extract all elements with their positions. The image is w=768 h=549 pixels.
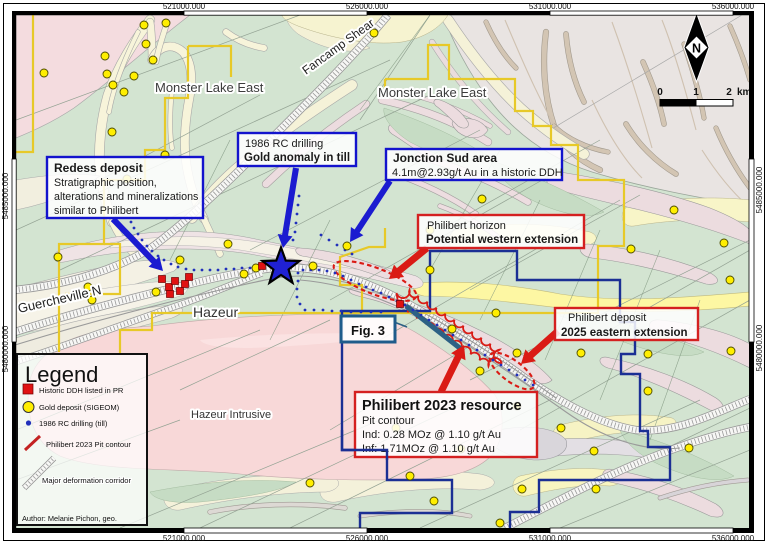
svg-text:Monster Lake East: Monster Lake East <box>155 80 264 95</box>
svg-text:5485000.000: 5485000.000 <box>1 172 10 219</box>
svg-text:526000.000: 526000.000 <box>346 534 389 543</box>
svg-text:531000.000: 531000.000 <box>529 2 572 11</box>
svg-text:526000.000: 526000.000 <box>346 2 389 11</box>
svg-text:536000.000: 536000.000 <box>712 2 755 11</box>
svg-text:521000.000: 521000.000 <box>163 2 206 11</box>
svg-text:Philibert horizon: Philibert horizon <box>427 220 506 232</box>
svg-text:0: 0 <box>657 87 663 98</box>
svg-text:Hazeur Intrusive: Hazeur Intrusive <box>191 409 271 421</box>
svg-text:Jonction Sud area: Jonction Sud area <box>393 151 497 165</box>
svg-text:5480000.000: 5480000.000 <box>755 324 764 371</box>
svg-text:Potential western extension: Potential western extension <box>426 234 578 246</box>
svg-text:531000.000: 531000.000 <box>529 534 572 543</box>
svg-text:Historic DDH listed in PR: Historic DDH listed in PR <box>39 386 124 395</box>
svg-text:Author: Melanie Pichon, geo.: Author: Melanie Pichon, geo. <box>22 514 117 523</box>
svg-text:1: 1 <box>693 87 699 98</box>
svg-text:Pit contour: Pit contour <box>362 415 415 427</box>
svg-text:4.1m@2.93g/t Au in a historic: 4.1m@2.93g/t Au in a historic DDH <box>392 167 563 179</box>
svg-text:alterations and mineralization: alterations and mineralizations <box>54 191 198 203</box>
svg-text:536000.000: 536000.000 <box>712 534 755 543</box>
svg-text:similar to Philibert: similar to Philibert <box>54 205 138 217</box>
svg-text:2025 eastern extension: 2025 eastern extension <box>561 327 688 339</box>
svg-text:1986 RC drilling (till): 1986 RC drilling (till) <box>39 419 108 428</box>
svg-text:5480000.000: 5480000.000 <box>1 325 10 372</box>
svg-text:Major deformation corridor: Major deformation corridor <box>42 476 132 485</box>
svg-text:521000.000: 521000.000 <box>163 534 206 543</box>
svg-text:Philibert deposit: Philibert deposit <box>568 312 646 324</box>
svg-text:5485000.000: 5485000.000 <box>755 166 764 213</box>
svg-text:Philibert 2023 resource: Philibert 2023 resource <box>362 398 522 414</box>
svg-text:Redess deposit: Redess deposit <box>54 161 143 175</box>
svg-text:Gold anomaly in till: Gold anomaly in till <box>244 152 350 164</box>
svg-text:Monster Lake East: Monster Lake East <box>378 85 487 100</box>
svg-text:Fig. 3: Fig. 3 <box>351 323 385 338</box>
svg-text:N: N <box>692 42 701 56</box>
svg-text:Hazeur: Hazeur <box>193 304 238 320</box>
svg-text:Stratigraphic position,: Stratigraphic position, <box>54 177 157 189</box>
svg-text:2: 2 <box>726 87 732 98</box>
svg-text:Philibert 2023 Pit contour: Philibert 2023 Pit contour <box>46 440 131 449</box>
svg-text:Legend: Legend <box>25 362 98 387</box>
svg-text:1986 RC drilling: 1986 RC drilling <box>245 138 323 150</box>
svg-text:Gold deposit (SIGEOM): Gold deposit (SIGEOM) <box>39 403 120 412</box>
svg-text:Ind: 0.28 MOz @ 1.10 g/t Au: Ind: 0.28 MOz @ 1.10 g/t Au <box>362 429 501 441</box>
